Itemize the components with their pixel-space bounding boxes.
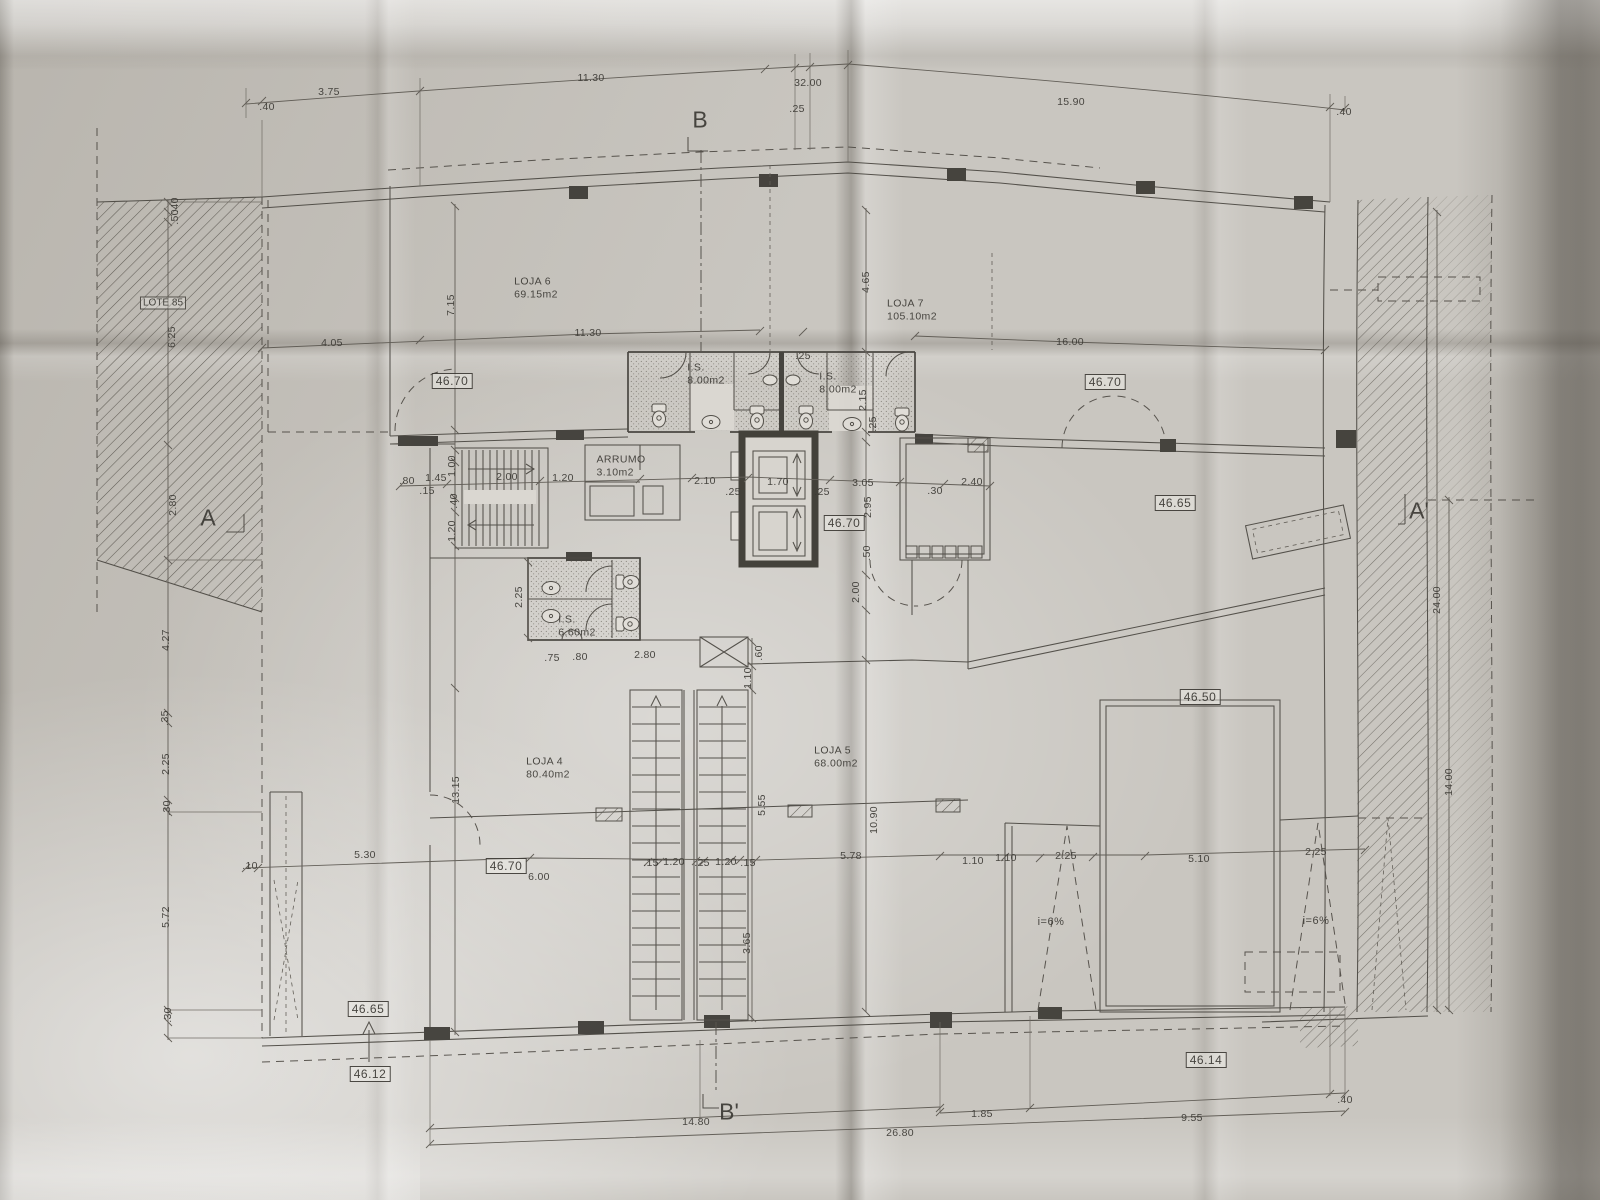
dimension-label: .40 <box>259 101 275 113</box>
dimension-label: .50 <box>861 545 873 561</box>
ramp-slope-label: i=6% <box>1303 915 1330 927</box>
dimension-label: .25 <box>694 857 710 869</box>
dimension-label: .30 <box>927 485 943 497</box>
dimension-label: 24.00 <box>1431 586 1443 614</box>
dimension-label: 3.75 <box>318 86 340 98</box>
elevation-level-label: 46.50 <box>1180 689 1221 705</box>
dimension-label: 6.00 <box>528 871 550 883</box>
dimension-label: 2.25 <box>1055 850 1077 862</box>
dimension-label: .30 <box>161 800 173 816</box>
dimension-label: 1.85 <box>971 1108 993 1120</box>
dimension-label: 1.10 <box>962 855 984 867</box>
elevation-level-label: 46.65 <box>348 1001 389 1017</box>
section-marker: B' <box>719 1099 739 1126</box>
dimension-label: 3.65 <box>741 932 753 954</box>
dimension-label: .25 <box>814 486 830 498</box>
dimension-label: .75 <box>544 652 560 664</box>
photographed-floor-plan: .403.7511.3032.00.2515.90.404.0511.3016.… <box>0 0 1600 1200</box>
dimension-label: 11.30 <box>575 327 602 339</box>
dimension-label: 4.65 <box>860 271 872 293</box>
dimension-label: .40 <box>448 493 460 509</box>
dimension-label: 2.80 <box>634 649 656 661</box>
dimension-label: 2.00 <box>850 581 862 603</box>
dimension-label: .25 <box>789 103 805 115</box>
dimension-label: .80 <box>572 651 588 663</box>
room-label: I.S.8.00m2 <box>819 370 856 395</box>
dimension-label: 14.80 <box>682 1116 710 1128</box>
dimension-label: 4.05 <box>321 337 343 349</box>
dimension-label: 6.25 <box>166 326 178 348</box>
dimension-label: .60 <box>753 645 765 661</box>
room-label: I.S.6.60m2 <box>558 613 595 638</box>
elevation-level-label: 46.70 <box>432 373 473 389</box>
dimension-label: 5.30 <box>354 849 376 861</box>
dimension-label: 2.00 <box>496 471 518 483</box>
dimension-label: .80 <box>399 475 415 487</box>
section-marker: B <box>692 107 707 134</box>
elevation-level-label: 46.14 <box>1186 1052 1227 1068</box>
dimension-label: 3.05 <box>852 477 874 489</box>
room-label: I.S.8.00m2 <box>687 361 724 386</box>
dimension-label: 1.20 <box>715 856 737 868</box>
dimension-label: 2.15 <box>857 389 869 411</box>
room-label: LOJA 568.00m2 <box>814 744 858 769</box>
dimension-label: 16.00 <box>1056 336 1084 348</box>
dimension-label: 10.90 <box>868 806 880 834</box>
dimension-label: 1.70 <box>767 476 789 488</box>
dimension-label: 1.00 <box>446 455 458 477</box>
dimension-label: 2.25 <box>1305 846 1327 858</box>
dimension-label: 5.10 <box>1188 853 1210 865</box>
dimension-label: 2.40 <box>961 476 983 488</box>
dimension-label: .25 <box>725 486 741 498</box>
dimension-label: 9.55 <box>1181 1112 1203 1124</box>
site-label: LOTE 85 <box>140 297 186 310</box>
dimension-label: 1.45 <box>425 472 447 484</box>
dimension-label: 32.00 <box>794 77 822 89</box>
dimension-label: 2.10 <box>694 475 716 487</box>
dimension-label: .25 <box>867 416 879 432</box>
dimension-label: 7.15 <box>445 294 457 316</box>
dimension-label: .40 <box>1336 106 1352 118</box>
room-label: LOJA 7105.10m2 <box>887 297 937 322</box>
annotation-layer: .403.7511.3032.00.2515.90.404.0511.3016.… <box>0 0 1600 1200</box>
dimension-label: 13.15 <box>450 776 462 804</box>
dimension-label: 26.80 <box>886 1127 914 1139</box>
elevation-level-label: 46.70 <box>824 515 865 531</box>
dimension-label: 1.10 <box>742 667 754 689</box>
dimension-label: 5.78 <box>840 850 862 862</box>
dimension-label: .15 <box>643 857 659 869</box>
dimension-label: 4.27 <box>160 629 172 651</box>
ramp-slope-label: i=6% <box>1038 916 1065 928</box>
dimension-label: 1.20 <box>446 520 458 542</box>
dimension-label: .25 <box>795 350 811 362</box>
dimension-label: .50 <box>169 209 181 225</box>
dimension-label: 5.55 <box>756 794 768 816</box>
dimension-label: 2.80 <box>167 494 179 516</box>
room-label: LOJA 480.40m2 <box>526 755 570 780</box>
dimension-label: 1.20 <box>663 856 685 868</box>
dimension-label: .15 <box>740 857 756 869</box>
section-marker: A <box>200 505 215 532</box>
dimension-label: 1.10 <box>995 852 1017 864</box>
dimension-label: .40 <box>1337 1094 1353 1106</box>
dimension-label: .10 <box>242 860 258 872</box>
elevation-level-label: 46.70 <box>486 858 527 874</box>
dimension-label: .35 <box>159 710 171 726</box>
room-label: LOJA 669.15m2 <box>514 275 558 300</box>
dimension-label: 2.25 <box>160 753 172 775</box>
dimension-label: .30 <box>162 1007 174 1023</box>
dimension-label: 5.72 <box>160 906 172 928</box>
elevation-level-label: 46.70 <box>1085 374 1126 390</box>
section-marker: A' <box>1409 498 1429 525</box>
elevation-level-label: 46.12 <box>350 1066 391 1082</box>
elevation-level-label: 46.65 <box>1155 495 1196 511</box>
dimension-label: 15.90 <box>1057 96 1085 108</box>
room-label: ARRUMO3.10m2 <box>596 453 645 478</box>
dimension-label: 1.20 <box>552 472 574 484</box>
dimension-label: 2.25 <box>513 586 525 608</box>
dimension-label: 11.30 <box>578 72 605 84</box>
dimension-label: 14.00 <box>1443 768 1455 796</box>
dimension-label: .15 <box>419 485 435 497</box>
